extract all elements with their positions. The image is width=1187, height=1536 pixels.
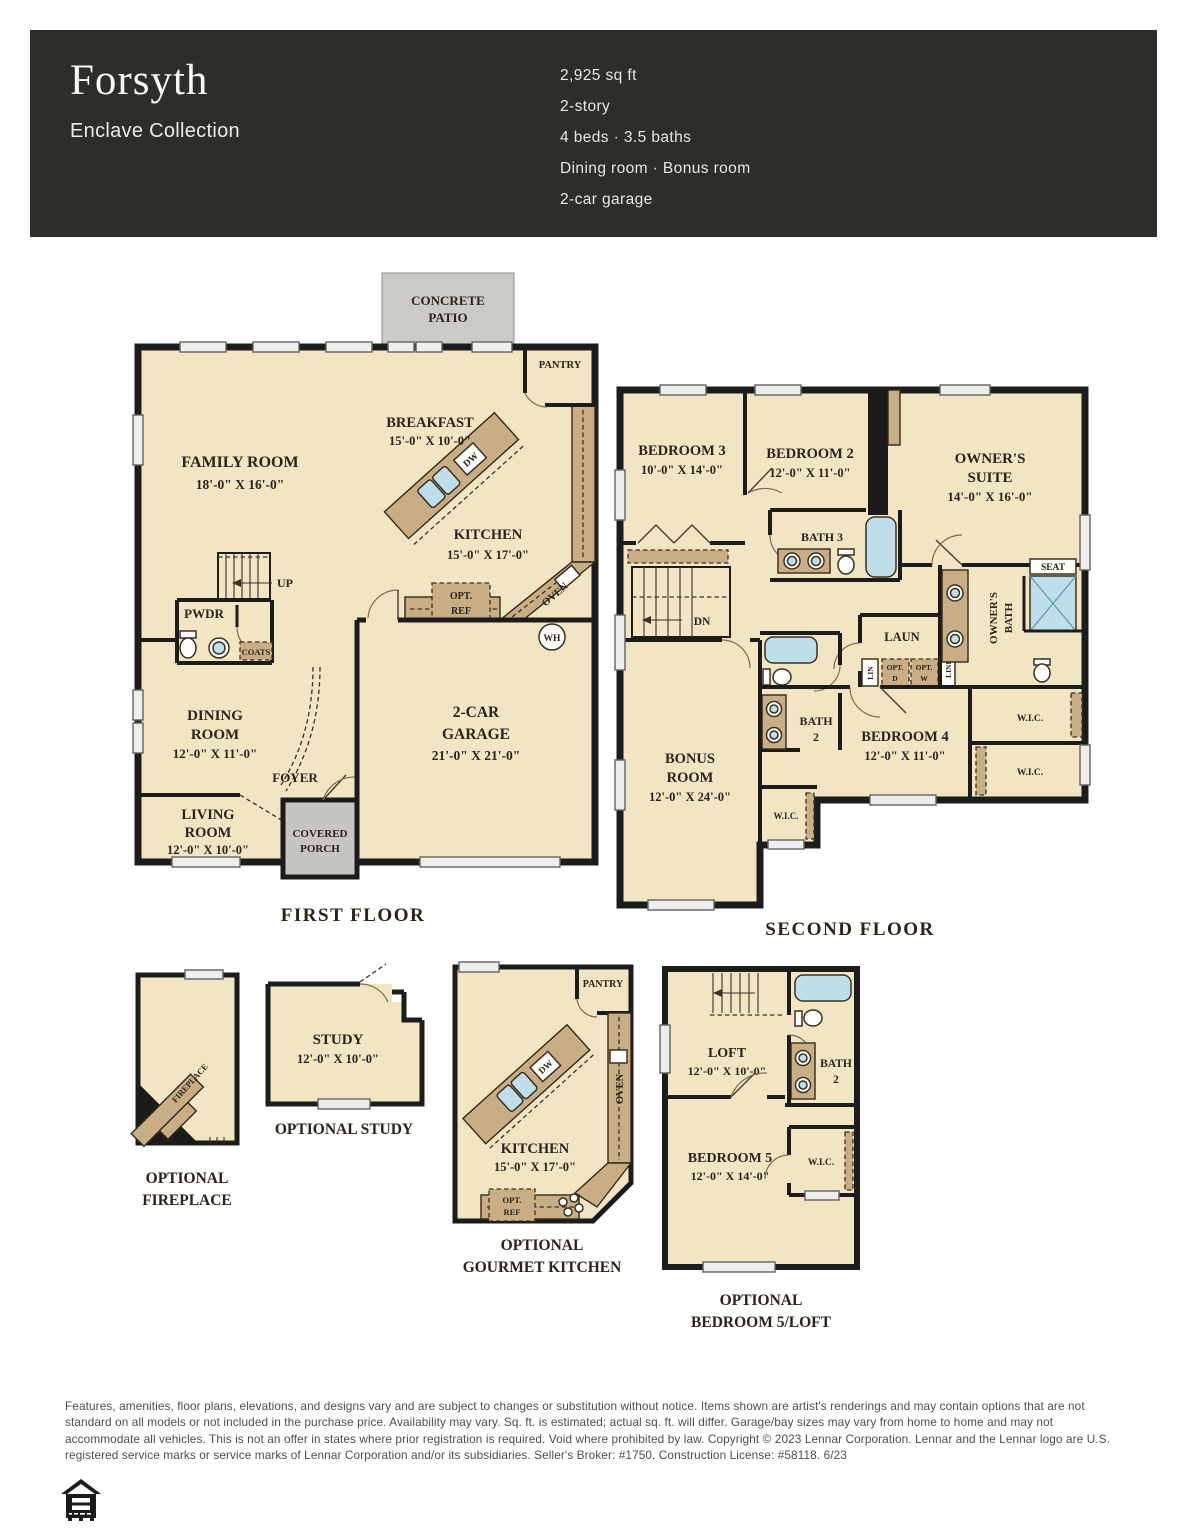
floorplan-sheet: Forsyth Enclave Collection 2,925 sq ft 2… <box>0 0 1187 1536</box>
svg-text:BREAKFAST: BREAKFAST <box>386 415 474 431</box>
loft-dims: 12'-0" X 10'-0" <box>688 1064 767 1078</box>
toilet-icon <box>804 1010 822 1026</box>
svg-text:ROOM: ROOM <box>191 727 239 743</box>
svg-text:BEDROOM 5: BEDROOM 5 <box>688 1151 772 1166</box>
optional-fireplace-plan: FIREPLACE OPTIONAL FIREPLACE <box>130 965 245 1220</box>
patio-label: CONCRETE <box>411 293 485 308</box>
svg-text:BEDROOM 3: BEDROOM 3 <box>638 443 725 459</box>
svg-text:BEDROOM 4: BEDROOM 4 <box>861 729 948 745</box>
bedroom5-dims: 12'-0" X 14'-0" <box>691 1169 770 1183</box>
optional-bedroom5-loft-plan: DN LOFT 12'-0" X 10'-0" BATH 2 BEDROOM 5… <box>655 955 875 1333</box>
optional-study-caption: OPTIONAL STUDY <box>275 1121 413 1138</box>
bathtub-icon <box>765 637 817 663</box>
pantry-label: PANTRY <box>539 360 582 371</box>
bedroom2-dims: 12'-0" X 11'-0" <box>769 466 850 480</box>
svg-text:REF: REF <box>451 606 471 617</box>
first-floor-plan: CONCRETE PATIO DW OPT. REF O <box>120 265 610 935</box>
svg-text:COVERED: COVERED <box>292 828 347 840</box>
first-floor-caption: FIRST FLOOR <box>281 905 425 926</box>
toilet-icon <box>838 556 854 574</box>
spec-sqft: 2,925 sq ft <box>560 60 751 91</box>
optional-fireplace-caption: FIREPLACE <box>142 1192 232 1209</box>
svg-text:OPT.: OPT. <box>503 1195 522 1205</box>
svg-text:OPTIONAL: OPTIONAL <box>501 1237 584 1254</box>
svg-text:LOFT: LOFT <box>708 1046 747 1061</box>
foyer-label: FOYER <box>272 770 318 785</box>
study-dims: 12'-0" X 10'-0" <box>297 1052 379 1066</box>
collection-subtitle: Enclave Collection <box>70 120 240 143</box>
powder-label: PWDR <box>184 606 224 621</box>
svg-text:OWNER'S: OWNER'S <box>988 592 1000 644</box>
garage-door <box>420 857 560 867</box>
svg-text:OPT.: OPT. <box>916 663 933 672</box>
header: Forsyth Enclave Collection 2,925 sq ft 2… <box>30 30 1157 237</box>
svg-text:PATIO: PATIO <box>428 310 467 325</box>
optional-kitchen-caption: GOURMET KITCHEN <box>463 1259 622 1276</box>
svg-text:BONUS: BONUS <box>665 751 715 767</box>
spec-garage: 2-car garage <box>560 184 751 215</box>
bathtub-icon <box>866 517 896 577</box>
wic-label: W.I.C. <box>808 1158 834 1168</box>
toilet-icon <box>1034 664 1050 682</box>
chase-wall <box>868 390 888 515</box>
spec-stories: 2-story <box>560 91 751 122</box>
svg-text:KITCHEN: KITCHEN <box>454 527 523 543</box>
second-floor-caption: SECOND FLOOR <box>765 919 935 940</box>
bonus-dims: 12'-0" X 24'-0" <box>649 790 731 804</box>
water-heater-label: WH <box>544 634 562 644</box>
bedroom4-dims: 12'-0" X 11'-0" <box>864 749 945 763</box>
svg-text:OPT.: OPT. <box>450 591 473 602</box>
wic-label: W.I.C. <box>1017 714 1043 724</box>
up-label: UP <box>277 576 293 590</box>
coats-label: COATS <box>242 647 271 657</box>
svg-text:DINING: DINING <box>187 708 243 724</box>
svg-text:FAMILY ROOM: FAMILY ROOM <box>181 454 298 471</box>
svg-text:ROOM: ROOM <box>667 770 714 786</box>
svg-text:2-CAR: 2-CAR <box>453 704 500 721</box>
svg-text:2: 2 <box>833 1074 839 1086</box>
svg-text:REF: REF <box>504 1207 521 1217</box>
svg-text:GARAGE: GARAGE <box>442 726 510 743</box>
spec-beds-baths: 4 beds · 3.5 baths <box>560 122 751 153</box>
svg-text:LIVING: LIVING <box>181 807 234 823</box>
laundry-label: LAUN <box>884 630 919 644</box>
svg-text:2: 2 <box>813 730 819 744</box>
concrete-patio: CONCRETE PATIO <box>382 273 514 347</box>
svg-text:BEDROOM 2: BEDROOM 2 <box>766 446 853 462</box>
living-dims: 12'-0" X 10'-0" <box>167 843 249 857</box>
breakfast-dims: 15'-0" X 10'-0" <box>389 434 471 448</box>
bathtub-icon <box>795 975 851 1001</box>
owners-dims: 14'-0" X 16'-0" <box>947 489 1032 504</box>
kitchen-label: KITCHEN <box>501 1141 570 1157</box>
second-floor-plan: BEDROOM 3 10'-0" X 14'-0" BEDROOM 2 12'-… <box>610 375 1100 975</box>
toilet-icon <box>773 669 791 685</box>
study-label: STUDY <box>313 1032 364 1048</box>
svg-text:OPTIONAL: OPTIONAL <box>146 1170 229 1187</box>
kitchen-dims: 15'-0" X 17'-0" <box>494 1160 576 1174</box>
page-title: Forsyth <box>70 56 208 105</box>
svg-text:BATH: BATH <box>820 1058 852 1070</box>
equal-housing-opportunity-logo <box>60 1478 102 1524</box>
bedroom3-dims: 10'-0" X 14'-0" <box>641 463 723 477</box>
oven-label: OVEN <box>615 1073 626 1104</box>
svg-text:BATH: BATH <box>799 714 833 728</box>
lin-label: LIN <box>866 666 875 680</box>
window <box>459 962 499 972</box>
dn-label: DN <box>694 616 711 628</box>
svg-text:OPTIONAL: OPTIONAL <box>720 1292 803 1309</box>
svg-text:W: W <box>920 674 928 683</box>
wic-label: W.I.C. <box>774 811 799 821</box>
optional-bed5-caption: BEDROOM 5/LOFT <box>691 1314 832 1331</box>
spec-list: 2,925 sq ft 2-story 4 beds · 3.5 baths D… <box>560 60 751 215</box>
seat-label: SEAT <box>1041 563 1066 573</box>
bath3-label: BATH 3 <box>801 530 843 544</box>
disclaimer-text: Features, amenities, floor plans, elevat… <box>65 1398 1128 1464</box>
sink-icon <box>213 642 225 654</box>
svg-text:OPT.: OPT. <box>887 663 904 672</box>
dining-dims: 12'-0" X 11'-0" <box>173 746 258 761</box>
svg-text:PORCH: PORCH <box>300 843 340 855</box>
kitchen-dims: 15'-0" X 17'-0" <box>447 548 529 562</box>
spec-rooms: Dining room · Bonus room <box>560 153 751 184</box>
svg-text:OWNER'S: OWNER'S <box>955 451 1026 467</box>
optional-study-plan: STUDY 12'-0" X 10'-0" OPTIONAL STUDY <box>258 962 430 1147</box>
svg-text:SUITE: SUITE <box>967 470 1012 486</box>
garage-dims: 21'-0" X 21'-0" <box>432 748 520 763</box>
svg-text:D: D <box>892 674 898 683</box>
svg-text:ROOM: ROOM <box>185 825 232 841</box>
svg-text:BATH: BATH <box>1003 602 1015 633</box>
optional-gourmet-kitchen-plan: PANTRY OVEN OPT. REF DW KITCHEN <box>445 955 640 1285</box>
family-dims: 18'-0" X 16'-0" <box>196 477 284 492</box>
wic-label: W.I.C. <box>1017 768 1043 778</box>
pantry-label: PANTRY <box>583 979 624 990</box>
